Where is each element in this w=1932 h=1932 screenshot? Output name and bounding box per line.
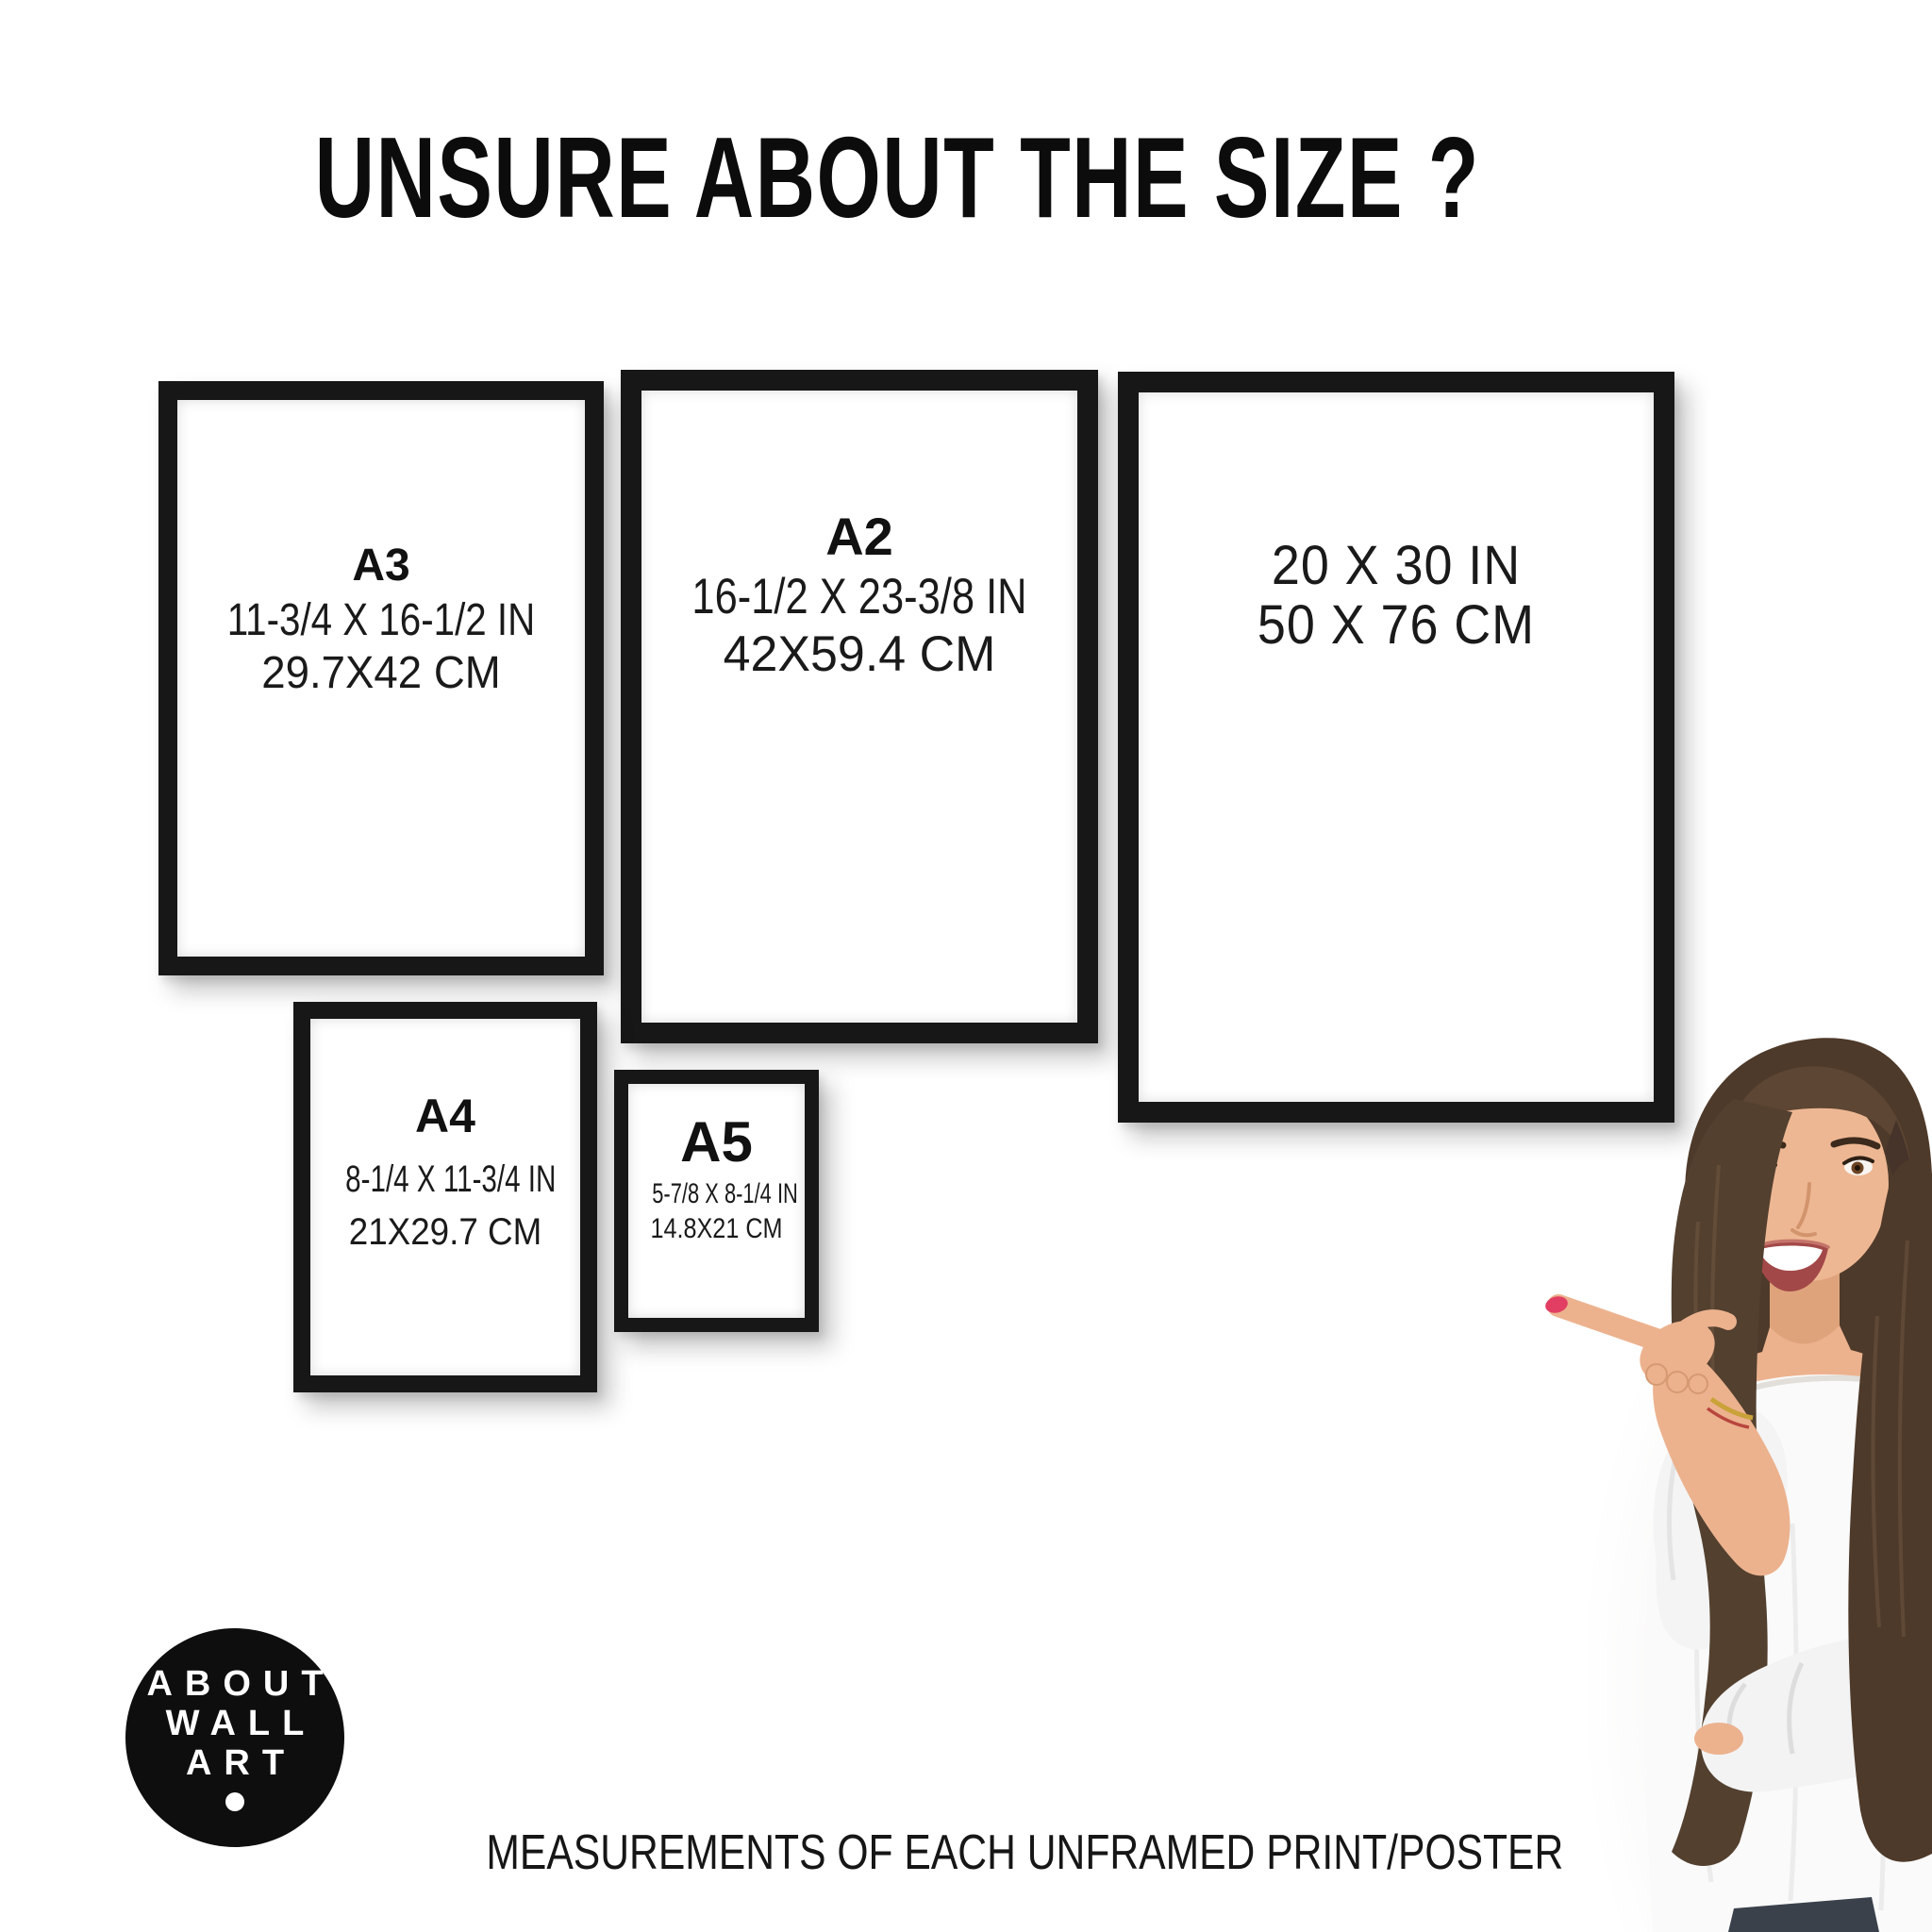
- logo-line-wall: WALL: [166, 1704, 317, 1743]
- frame-a2: A2 16-1/2 X 23-3/8 IN 42X59.4 CM: [621, 370, 1098, 1043]
- frame-a4-content: A4 8-1/4 X 11-3/4 IN 21X29.7 CM: [310, 1019, 580, 1258]
- frame-a3: A3 11-3/4 X 16-1/2 IN 29.7X42 CM: [158, 381, 604, 975]
- logo-dot-icon: [225, 1792, 244, 1811]
- frame-a5-size-inches: 5-7/8 X 8-1/4 IN: [652, 1176, 781, 1211]
- frame-a3-content: A3 11-3/4 X 16-1/2 IN 29.7X42 CM: [177, 400, 585, 700]
- frame-a4-size-cm: 21X29.7 CM: [321, 1206, 569, 1258]
- poster-canvas: UNSURE ABOUT THE SIZE ? A3 11-3/4 X 16-1…: [0, 0, 1932, 1932]
- brand-logo: ABOUT WALL ART: [125, 1628, 344, 1847]
- logo-line-about: ABOUT: [146, 1664, 335, 1704]
- tucked-hand: [1694, 1723, 1743, 1755]
- frame-a4-size-inches: 8-1/4 X 11-3/4 IN: [345, 1153, 545, 1206]
- frame-a2-label: A2: [825, 506, 893, 568]
- frame-20x30-size-cm: 50 X 76 CM: [1157, 595, 1636, 655]
- frame-20x30-size-inches: 20 X 30 IN: [1157, 536, 1636, 595]
- frame-a2-size-cm: 42X59.4 CM: [646, 625, 1074, 683]
- footer-caption: MEASUREMENTS OF EACH UNFRAMED PRINT/POST…: [486, 1824, 1306, 1881]
- page-title: UNSURE ABOUT THE SIZE ?: [315, 111, 1225, 243]
- frame-a4: A4 8-1/4 X 11-3/4 IN 21X29.7 CM: [293, 1002, 597, 1392]
- frame-a5-label: A5: [680, 1110, 753, 1174]
- frame-a3-size-inches: 11-3/4 X 16-1/2 IN: [210, 594, 553, 647]
- frame-20x30-content: 20 X 30 IN 50 X 76 CM: [1139, 392, 1654, 655]
- frame-a2-content: A2 16-1/2 X 23-3/8 IN 42X59.4 CM: [641, 391, 1077, 683]
- frame-a4-label: A4: [415, 1087, 475, 1145]
- frame-a3-label: A3: [352, 538, 409, 594]
- frame-20x30: 20 X 30 IN 50 X 76 CM: [1118, 372, 1674, 1123]
- frame-a5: A5 5-7/8 X 8-1/4 IN 14.8X21 CM: [614, 1070, 819, 1332]
- thumb: [1687, 1318, 1728, 1327]
- frame-a3-size-cm: 29.7X42 CM: [188, 647, 575, 700]
- logo-line-art: ART: [186, 1743, 296, 1783]
- frame-a5-size-cm: 14.8X21 CM: [642, 1211, 791, 1246]
- frame-a2-size-inches: 16-1/2 X 23-3/8 IN: [681, 568, 1039, 625]
- frame-a5-content: A5 5-7/8 X 8-1/4 IN 14.8X21 CM: [628, 1084, 805, 1246]
- woman-pointing-illustration: [1387, 1033, 1932, 1932]
